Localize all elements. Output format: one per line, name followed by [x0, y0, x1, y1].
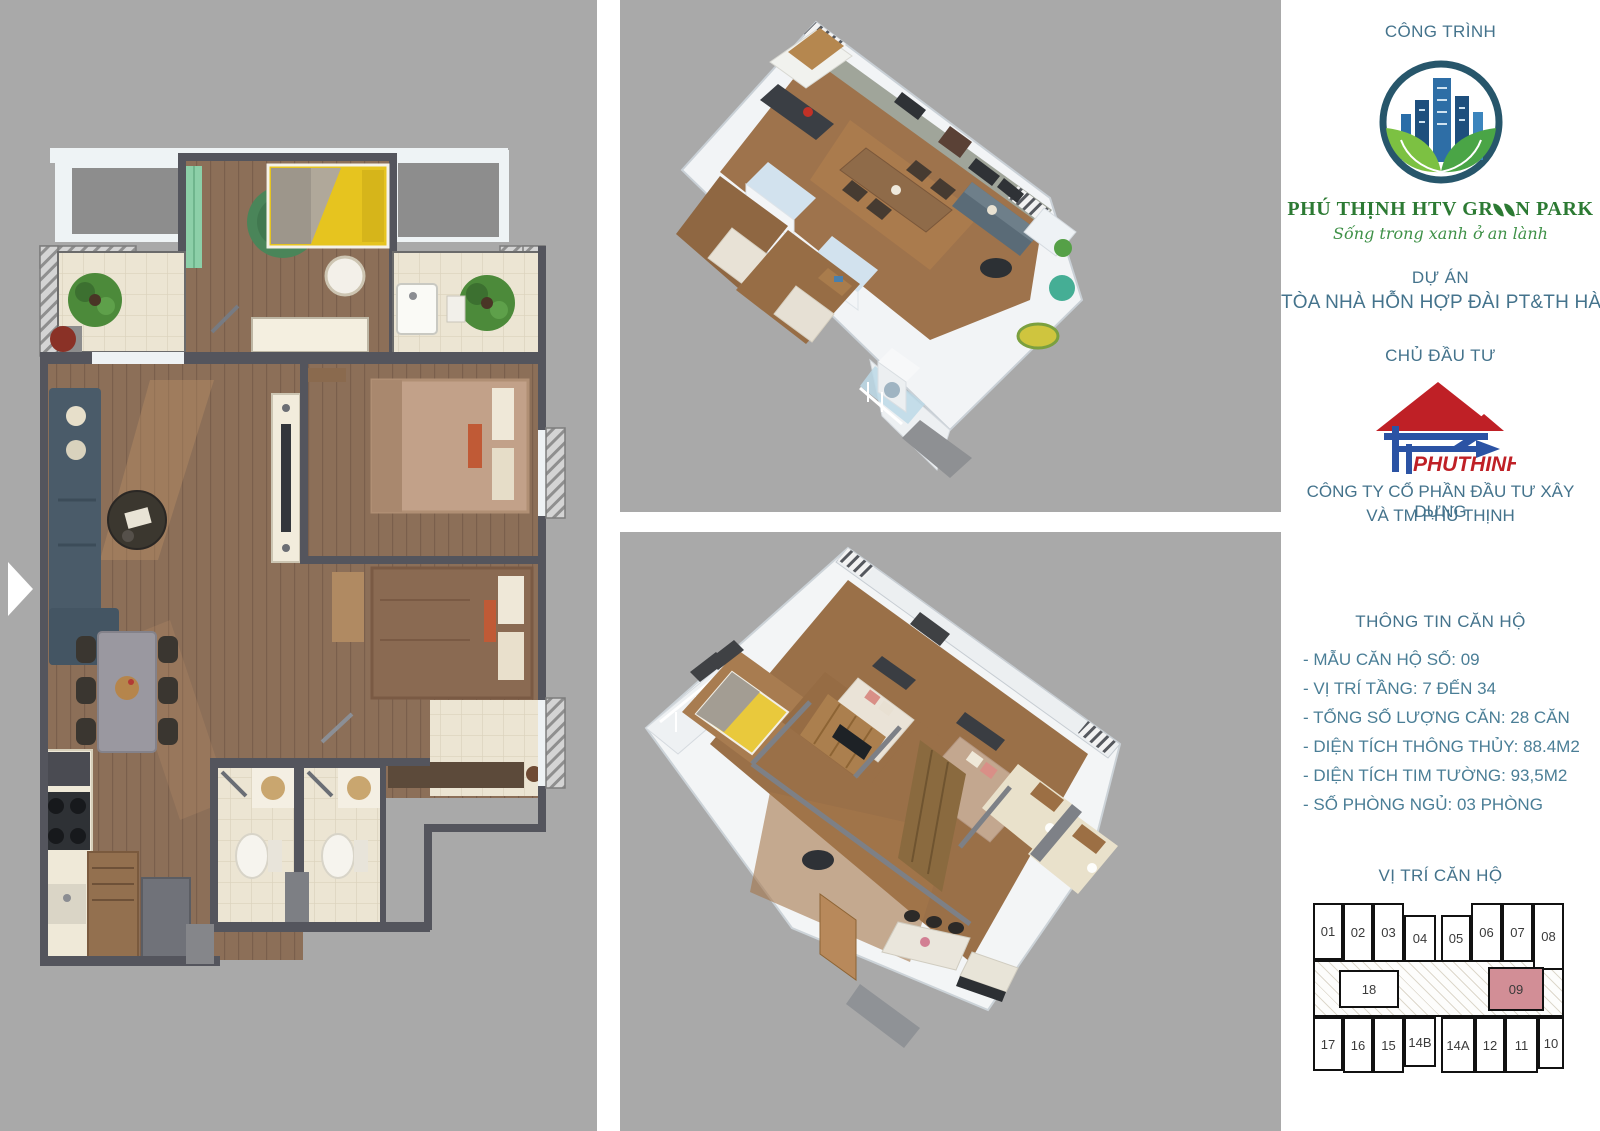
- info-item: - DIỆN TÍCH THÔNG THỦY: 88.4M2: [1303, 732, 1593, 761]
- unit-cell-06: 06: [1471, 903, 1502, 962]
- unit-location-map: 0102030405060708180917161514B14A121110: [1311, 903, 1566, 1075]
- render-3d-top-panel: [620, 0, 1281, 512]
- unit-cell-03: 03: [1373, 903, 1404, 962]
- phuthinh-logo-icon: PHUTHINH: [1366, 376, 1516, 476]
- hatch-window-right-2: [546, 698, 565, 788]
- unit-cell-09: 09: [1488, 967, 1544, 1011]
- phuthinh-logo-text: PHUTHINH: [1413, 453, 1516, 476]
- floorplan-2d: [0, 0, 597, 1131]
- phuthinh-logo: PHUTHINH: [1281, 376, 1600, 476]
- bathroom-1: [215, 765, 297, 925]
- floorplan-2d-panel: [0, 0, 597, 1131]
- info-column: CÔNG TRÌNH: [1281, 0, 1600, 1131]
- info-item: - MẪU CĂN HỘ SỐ: 09: [1303, 645, 1593, 674]
- chu-dau-tu-label: CHỦ ĐẦU TƯ: [1281, 346, 1600, 366]
- leaf-icon: [1494, 202, 1505, 217]
- hatch-window-right-1: [546, 428, 565, 518]
- unit-cell-10: 10: [1538, 1017, 1564, 1069]
- info-item: - DIỆN TÍCH TIM TƯỜNG: 93,5M2: [1303, 761, 1593, 790]
- bathroom-2: [301, 765, 383, 925]
- company-line2: VÀ TM PHÚ THỊNH: [1281, 506, 1600, 526]
- unit-cell-01: 01: [1313, 903, 1343, 960]
- info-item: - VỊ TRÍ TẦNG: 7 ĐẾN 34: [1303, 674, 1593, 703]
- du-an-name: TÒA NHÀ HỖN HỢP ĐÀI PT&TH HÀ NỘI: [1281, 292, 1600, 314]
- brochure-page: CÔNG TRÌNH: [0, 0, 1600, 1131]
- brand-left: PHÚ THỊNH HTV GR: [1287, 198, 1493, 220]
- apartment-info-list: - MẪU CĂN HỘ SỐ: 09 - VỊ TRÍ TẦNG: 7 ĐẾN…: [1303, 645, 1593, 819]
- info-item: - SỐ PHÒNG NGỦ: 03 PHÒNG: [1303, 790, 1593, 819]
- round-rug-3d: [1018, 324, 1058, 348]
- brand-name: PHÚ THỊNH HTV GRN PARK: [1281, 198, 1600, 221]
- tv-console: [272, 394, 300, 562]
- unit-cell-15: 15: [1373, 1017, 1404, 1073]
- shower-tray: [397, 284, 437, 334]
- du-an-label: DỰ ÁN: [1281, 268, 1600, 288]
- unit-cell-16: 16: [1343, 1017, 1373, 1073]
- unit-cell-18: 18: [1339, 970, 1399, 1008]
- bassinet: [326, 257, 364, 295]
- brand-right: N PARK: [1515, 198, 1593, 220]
- teal-tree: [1049, 275, 1075, 301]
- cong-trinh-label: CÔNG TRÌNH: [1281, 22, 1600, 42]
- unit-cell-17: 17: [1313, 1017, 1343, 1071]
- green-park-logo-icon: [1371, 52, 1511, 200]
- thong-tin-label: THÔNG TIN CĂN HỘ: [1281, 612, 1600, 632]
- unit-cell-14A: 14A: [1441, 1017, 1475, 1073]
- coffee-table-3d: [802, 850, 834, 870]
- plant-3d: [1054, 239, 1072, 257]
- coffee-table: [108, 491, 166, 549]
- green-park-logo: [1281, 52, 1600, 200]
- unit-cell-11: 11: [1505, 1017, 1538, 1073]
- balcony-right: [393, 246, 545, 358]
- hall-closet: [252, 318, 368, 352]
- red-plant: [50, 326, 76, 352]
- unit-cell-12: 12: [1475, 1017, 1505, 1073]
- render-3d-bottom-panel: [620, 532, 1281, 1131]
- leaf-icon: [1505, 202, 1516, 217]
- unit-cell-02: 02: [1343, 903, 1373, 962]
- entry-mat: [186, 924, 214, 964]
- dining-set: [76, 632, 178, 752]
- unit-cell-04: 04: [1404, 915, 1436, 962]
- render-3d-bottom: [620, 532, 1281, 1131]
- unit-cell-08: 08: [1533, 903, 1564, 970]
- vi-tri-label: VỊ TRÍ CĂN HỘ: [1281, 866, 1600, 886]
- unit-cell-07: 07: [1502, 903, 1533, 962]
- yellow-bed: [268, 165, 388, 247]
- bath-divider-door: [285, 872, 309, 925]
- unit-cell-14B: 14B: [1404, 1017, 1436, 1067]
- brand-tagline: Sống trong xanh ở an lành: [1281, 224, 1600, 243]
- info-item: - TỔNG SỐ LƯỢNG CĂN: 28 CĂN: [1303, 703, 1593, 732]
- render-3d-top: [620, 0, 1281, 512]
- unit-cell-05: 05: [1441, 915, 1471, 962]
